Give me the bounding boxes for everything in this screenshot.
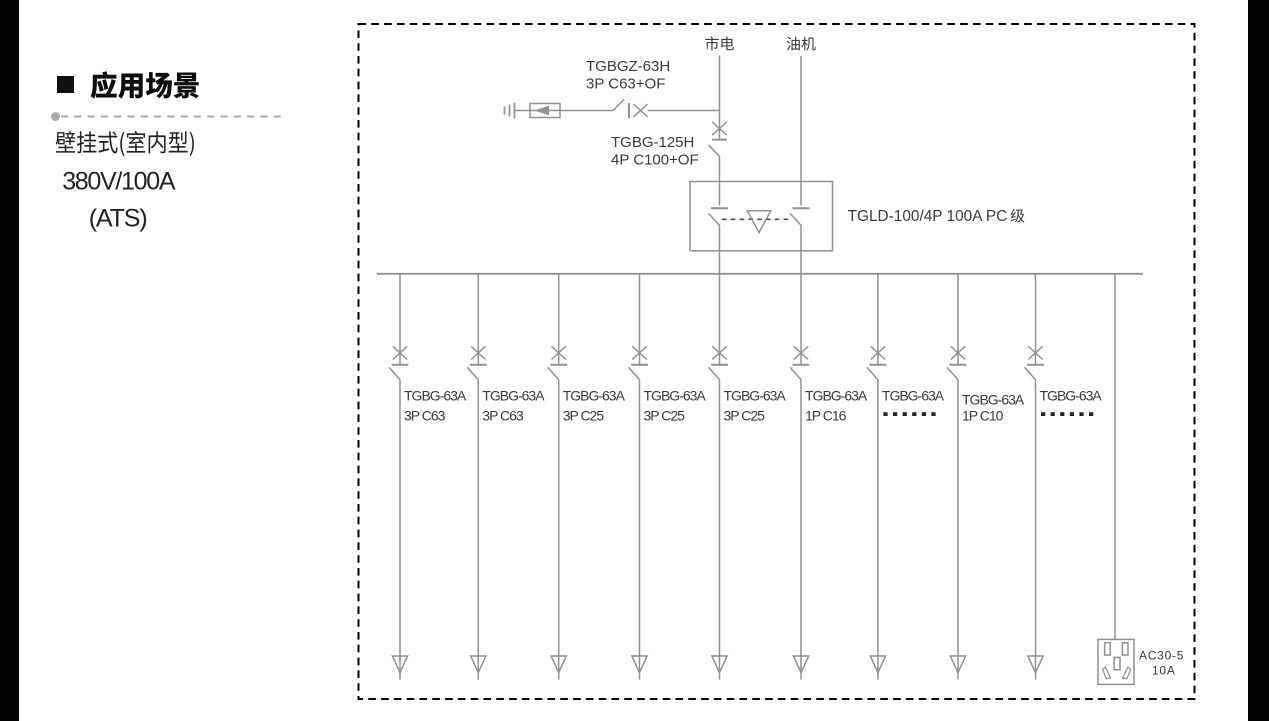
svg-text:TGBG-63A: TGBG-63A	[962, 391, 1025, 407]
svg-text:AC30-5: AC30-5	[1139, 649, 1184, 663]
svg-text:TGBG-63A: TGBG-63A	[563, 387, 626, 403]
svg-text:TGBG-63A: TGBG-63A	[644, 387, 707, 403]
svg-text:TGBG-63A: TGBG-63A	[482, 387, 545, 403]
svg-text:TGBG-63A: TGBG-63A	[1040, 387, 1103, 403]
svg-text:3P C63: 3P C63	[482, 407, 524, 423]
svg-text:TGLD-100/4P 100A PC: TGLD-100/4P 100A PC	[848, 208, 1008, 225]
svg-text:380V/100A: 380V/100A	[62, 167, 176, 195]
svg-text:TGBG-63A: TGBG-63A	[805, 387, 868, 403]
svg-text:4P C100+OF: 4P C100+OF	[611, 152, 699, 169]
svg-text:TGBG-63A: TGBG-63A	[404, 387, 467, 403]
svg-text:TGBGZ-63H: TGBGZ-63H	[586, 58, 670, 75]
svg-text:TGBG-125H: TGBG-125H	[611, 134, 694, 151]
svg-text:3P C25: 3P C25	[724, 407, 766, 423]
svg-text:3P C25: 3P C25	[563, 407, 605, 423]
svg-text:(ATS): (ATS)	[89, 205, 147, 233]
svg-text:3P C25: 3P C25	[644, 407, 686, 423]
svg-text:1P C10: 1P C10	[962, 407, 1004, 423]
svg-text:3P C63: 3P C63	[404, 407, 446, 423]
svg-text:3P C63+OF: 3P C63+OF	[586, 76, 665, 93]
svg-text:10A: 10A	[1152, 664, 1176, 678]
svg-text:1P C16: 1P C16	[805, 407, 847, 423]
svg-text:TGBG-63A: TGBG-63A	[724, 387, 787, 403]
svg-text:TGBG-63A: TGBG-63A	[882, 387, 945, 403]
